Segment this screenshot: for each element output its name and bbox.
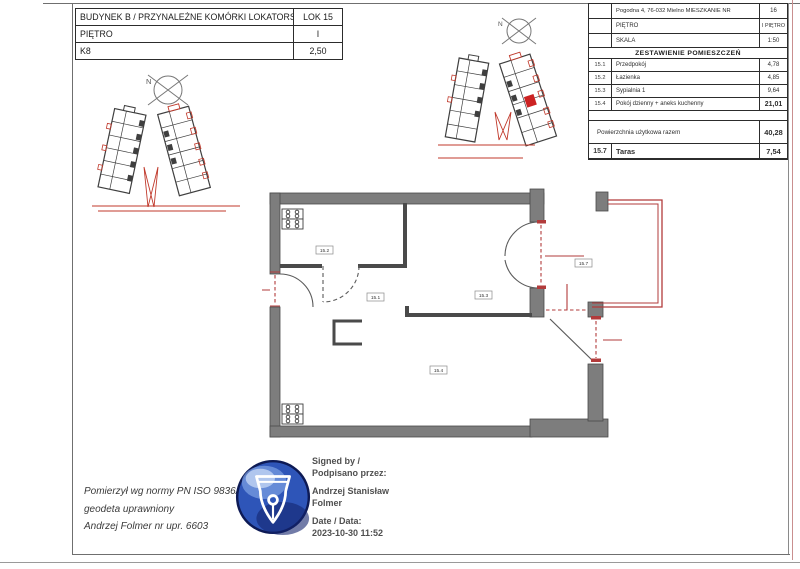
room-area: 9,64 (760, 88, 787, 94)
page-edge-line (0, 562, 800, 563)
signer-name: Folmer (312, 498, 389, 510)
compass-icon: N (146, 75, 188, 105)
room-label-bathroom: 15.2 (316, 246, 333, 254)
svg-text:15.4: 15.4 (434, 368, 444, 374)
room-area: 4,85 (760, 75, 787, 81)
surveyor-note-line: Pomierzył wg normy PN ISO 9836/97 (84, 483, 250, 501)
room-name: Łazienka (612, 72, 760, 84)
bathroom-door-arc (323, 266, 359, 302)
room-label-terrace: 15.7 (575, 259, 592, 267)
terrace-door-leaf (550, 319, 593, 361)
signature-date-value: 2023-10-30 11:52 (312, 528, 389, 540)
table-row: K8 2,50 (76, 43, 343, 60)
room-label-bedroom: 15.3 (475, 291, 492, 299)
table-row: SKALA 1:50 (589, 34, 787, 48)
total-area: 40,28 (760, 128, 787, 137)
empty-row (589, 111, 787, 121)
floor-value: I PIĘTRO (760, 23, 787, 29)
signature-date-label: Date / Data: (312, 516, 389, 528)
compass-n-label: N (146, 77, 151, 86)
room-name: Pokój dzienny + aneks kuchenny (612, 98, 760, 110)
surveyor-note: Pomierzył wg normy PN ISO 9836/97 geodet… (84, 483, 250, 536)
table-section-header: ZESTAWIENIE POMIESZCZEŃ (589, 48, 787, 59)
table-row: Pogodna 4, 76-032 Mielno MIESZKANIE NR 1… (589, 4, 787, 19)
entry-door-arc (280, 274, 313, 307)
apartment-floor-plan: 15.2 15.1 15.3 15.4 15.7 (262, 184, 668, 446)
red-openings (262, 200, 662, 358)
building-value: LOK 15 (294, 9, 343, 26)
red-door-frames (537, 220, 601, 362)
room-row: 15.3 Sypialnia 1 9,64 (589, 85, 787, 98)
site-plan-left: N (88, 60, 258, 215)
scale-label: SKALA (612, 34, 760, 47)
section-title: ZESTAWIENIE POMIESZCZEŃ (589, 48, 787, 58)
terrace-name: Taras (612, 144, 760, 158)
svg-text:15.3: 15.3 (479, 293, 489, 299)
balcony-double-door-arcs (505, 222, 539, 288)
signer-name: Andrzej Stanisław (312, 486, 389, 498)
room-number: 15.4 (589, 98, 612, 110)
stove-shaft-symbol-top (282, 209, 303, 229)
surveyor-note-line: Andrzej Folmer nr upr. 6603 (84, 518, 250, 536)
floor-label: PIĘTRO (76, 26, 294, 43)
floor-label: PIĘTRO (612, 19, 760, 33)
room-labels: 15.2 15.1 15.3 15.4 15.7 (316, 246, 592, 374)
terrace-number: 15.7 (589, 144, 612, 158)
building-outline-b-highlighted (498, 49, 558, 146)
svg-text:15.7: 15.7 (579, 261, 589, 267)
terrace-area: 7,54 (760, 147, 787, 156)
room-row: 15.1 Przedpokój 4,78 (589, 59, 787, 72)
page-border-bottom (72, 554, 790, 555)
table-row: PIĘTRO I PIĘTRO (589, 19, 787, 34)
room-label-hall: 15.1 (367, 293, 384, 301)
kitchen-annex-wall (334, 321, 362, 344)
page-border-right (788, 3, 789, 554)
storage-value: 2,50 (294, 43, 343, 60)
terrace-row: 15.7 Taras 7,54 (589, 144, 787, 159)
signature-stamp-icon (234, 458, 312, 536)
building-outline-a (441, 52, 489, 142)
room-row: 15.2 Łazienka 4,85 (589, 72, 787, 85)
signature-text-block: Signed by / Podpisano przez: Andrzej Sta… (312, 456, 389, 539)
surveyor-note-line: geodeta uprawniony (84, 501, 250, 519)
floor-value: I (294, 26, 343, 43)
interior-walls (280, 203, 532, 344)
building-info-table: BUDYNEK B / PRZYNALEŻNE KOMÓRKI LOKATORS… (75, 8, 343, 60)
building-label: BUDYNEK B / PRZYNALEŻNE KOMÓRKI LOKATORS… (76, 9, 294, 26)
table-row: PIĘTRO I (76, 26, 343, 43)
room-name: Sypialnia 1 (612, 85, 760, 97)
room-name: Przedpokój (612, 59, 760, 71)
table-row: BUDYNEK B / PRZYNALEŻNE KOMÓRKI LOKATORS… (76, 9, 343, 26)
building-outline-a (94, 103, 147, 194)
stove-shaft-symbol-bottom (282, 404, 303, 424)
apartment-summary-table: Pogodna 4, 76-032 Mielno MIESZKANIE NR 1… (588, 3, 788, 160)
door-swings (280, 222, 593, 361)
room-row: 15.4 Pokój dzienny + aneks kuchenny 21,0… (589, 98, 787, 111)
floor-plan-document-page: BUDYNEK B / PRZYNALEŻNE KOMÓRKI LOKATORS… (0, 0, 800, 569)
storage-label: K8 (76, 43, 294, 60)
room-label-living-room: 15.4 (430, 366, 447, 374)
terrace-outline-inner (592, 204, 658, 303)
building-outline-b (156, 101, 211, 196)
address-label: Pogodna 4, 76-032 Mielno MIESZKANIE NR (612, 4, 760, 18)
room-number: 15.3 (589, 85, 612, 97)
compass-n-label: N (498, 21, 503, 28)
room-area: 21,01 (760, 101, 787, 108)
total-row: Powierzchnia użytkowa razem 40,28 (589, 121, 787, 144)
room-area: 4,78 (760, 62, 787, 68)
signed-by-label: Signed by / (312, 456, 389, 468)
compass-icon: N (498, 18, 536, 44)
room-number: 15.1 (589, 59, 612, 71)
room-number: 15.2 (589, 72, 612, 84)
page-border-left (72, 3, 73, 554)
svg-text:15.1: 15.1 (371, 295, 381, 301)
total-label: Powierzchnia użytkowa razem (589, 121, 760, 143)
site-plan-right: N (435, 12, 585, 177)
terrace-outline-outer (592, 200, 662, 307)
page-margin-red-line (792, 0, 793, 560)
svg-text:15.2: 15.2 (320, 248, 330, 254)
scale-value: 1:50 (760, 38, 787, 44)
signed-by-label-pl: Podpisano przez: (312, 468, 389, 480)
apartment-number: 16 (760, 8, 787, 14)
